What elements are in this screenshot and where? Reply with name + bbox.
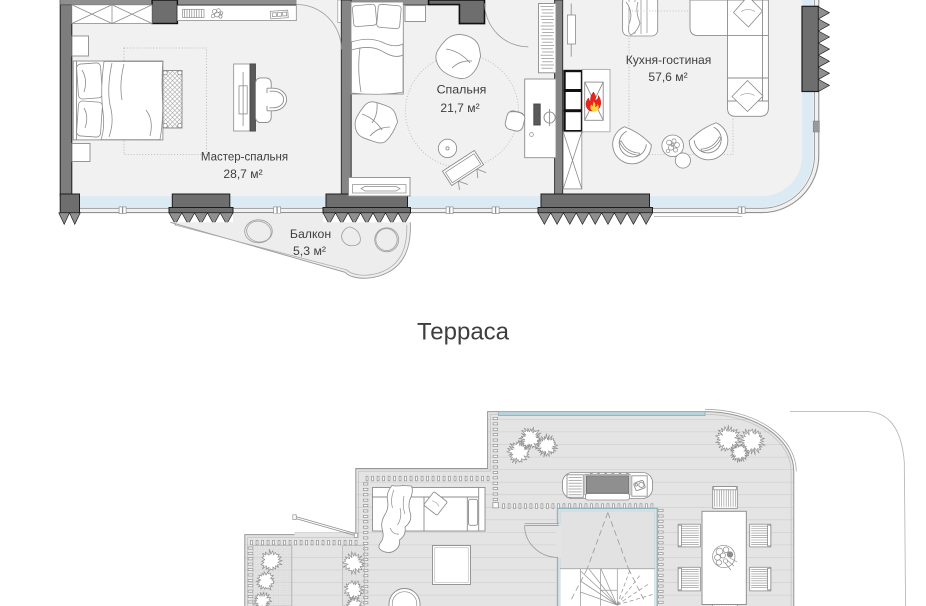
svg-text:5,3 м²: 5,3 м²: [293, 244, 326, 258]
svg-text:Мастер-спальня: Мастер-спальня: [201, 152, 288, 164]
svg-text:57,6 м²: 57,6 м²: [648, 70, 687, 84]
svg-text:Кухня-гостиная: Кухня-гостиная: [626, 53, 712, 67]
svg-text:Спальня: Спальня: [437, 83, 487, 97]
svg-text:21,7 м²: 21,7 м²: [440, 101, 479, 115]
svg-text:Терраса: Терраса: [417, 318, 510, 345]
svg-text:Балкон: Балкон: [290, 227, 331, 241]
svg-text:28,7 м²: 28,7 м²: [223, 167, 262, 181]
